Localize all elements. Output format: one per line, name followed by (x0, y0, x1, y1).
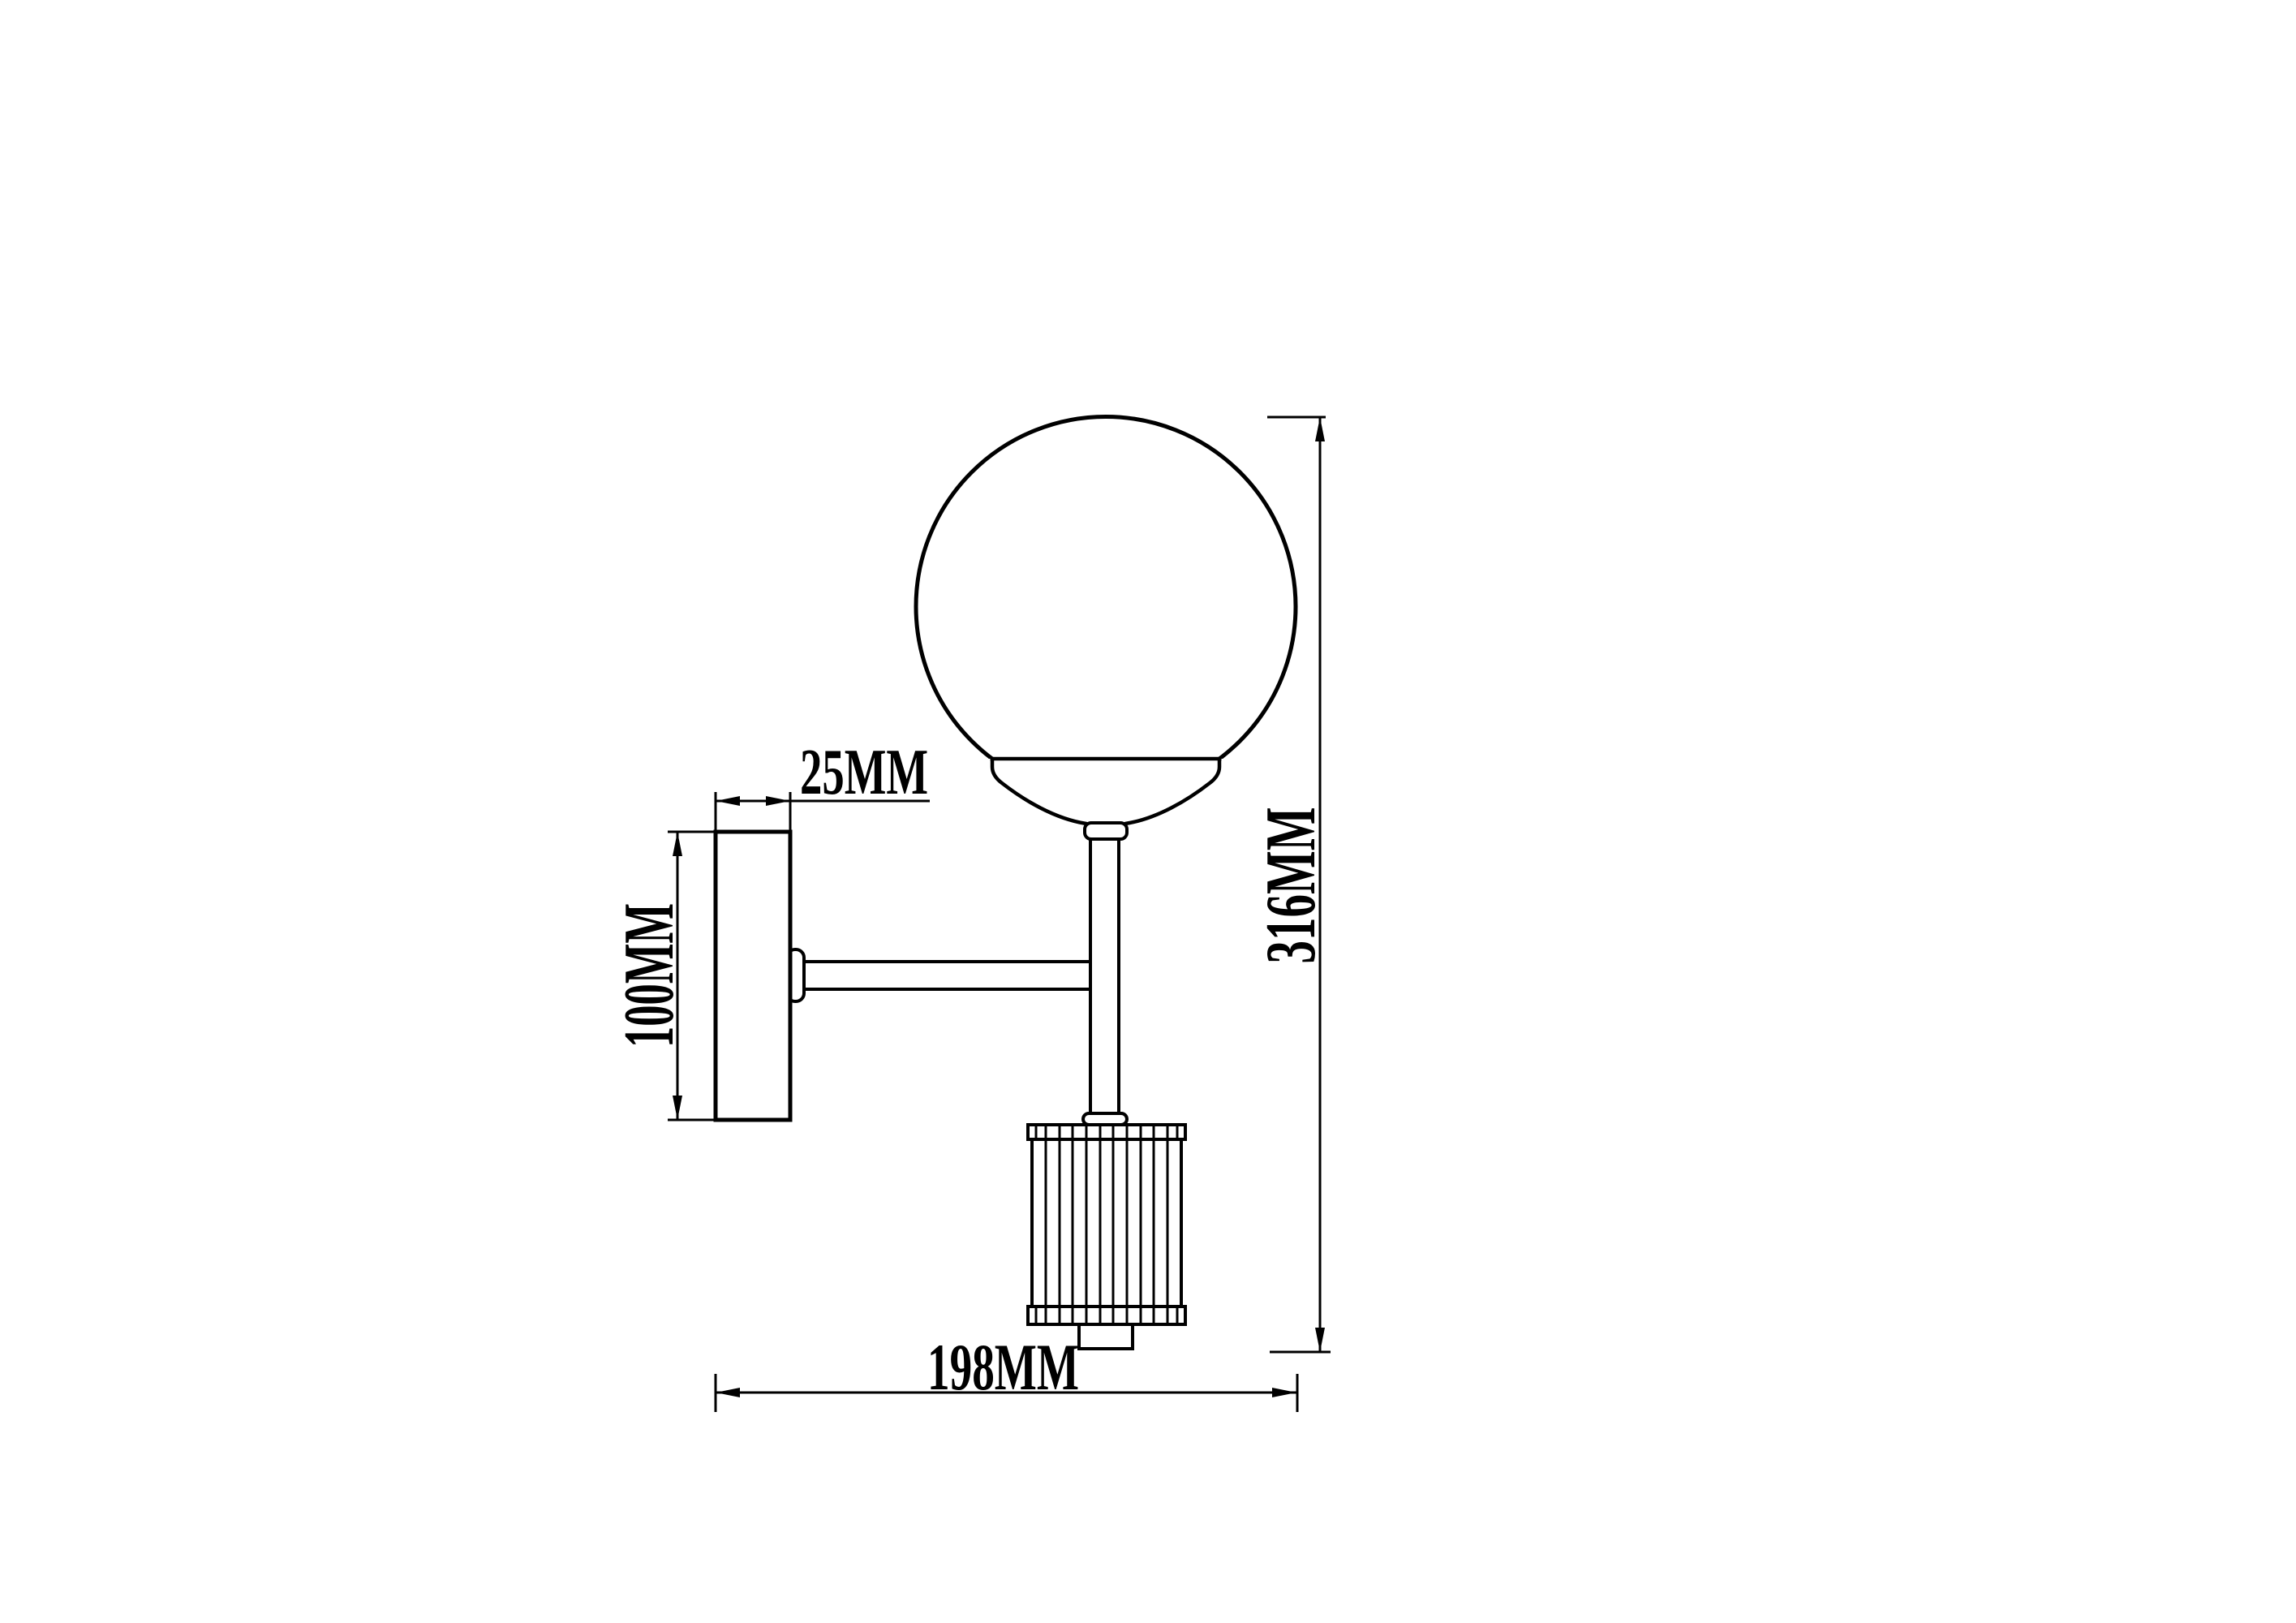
arrowhead-left-icon (716, 1388, 740, 1397)
crystal-cylinder-body (1032, 1139, 1181, 1307)
socket-neck-collar (1085, 823, 1127, 839)
arrowhead-up-icon (1315, 417, 1325, 441)
crystal-cylinder-top-cap (1028, 1125, 1185, 1139)
socket-bell-right-curve (1124, 759, 1219, 824)
stem-bottom-collar (1083, 1113, 1127, 1125)
socket-bell-left-curve (992, 759, 1088, 824)
arrowhead-down-icon (673, 1096, 682, 1120)
wall-sconce-dimension-drawing: 25MM 100MM 316MM 198MM (0, 0, 2296, 1623)
drawing-page: 25MM 100MM 316MM 198MM (0, 0, 2296, 1623)
arrowhead-right-icon (1272, 1388, 1296, 1397)
bottom-finial-box (1079, 1324, 1133, 1349)
dimension-overall-width: 198MM (716, 1330, 1297, 1412)
dimension-label-25mm: 25MM (800, 737, 928, 808)
dimension-label-316mm: 316MM (1252, 807, 1331, 964)
dimension-label-198mm: 198MM (927, 1330, 1079, 1404)
arrowhead-up-icon (673, 832, 682, 856)
stem (1090, 839, 1119, 1118)
crystal-cylinder-bottom-cap (1028, 1307, 1185, 1324)
arrowhead-right-icon (766, 796, 790, 806)
arrowhead-down-icon (1315, 1328, 1325, 1352)
dimension-backplate-height: 100MM (610, 832, 719, 1120)
mounting-arm (802, 962, 1105, 989)
dimension-label-100mm: 100MM (610, 903, 689, 1048)
dimension-backplate-depth: 25MM (716, 737, 930, 834)
wall-backplate (716, 832, 790, 1120)
arrowhead-left-icon (716, 796, 740, 806)
globe-shade-outline (916, 417, 1296, 797)
sconce-fixture (716, 417, 1296, 1350)
